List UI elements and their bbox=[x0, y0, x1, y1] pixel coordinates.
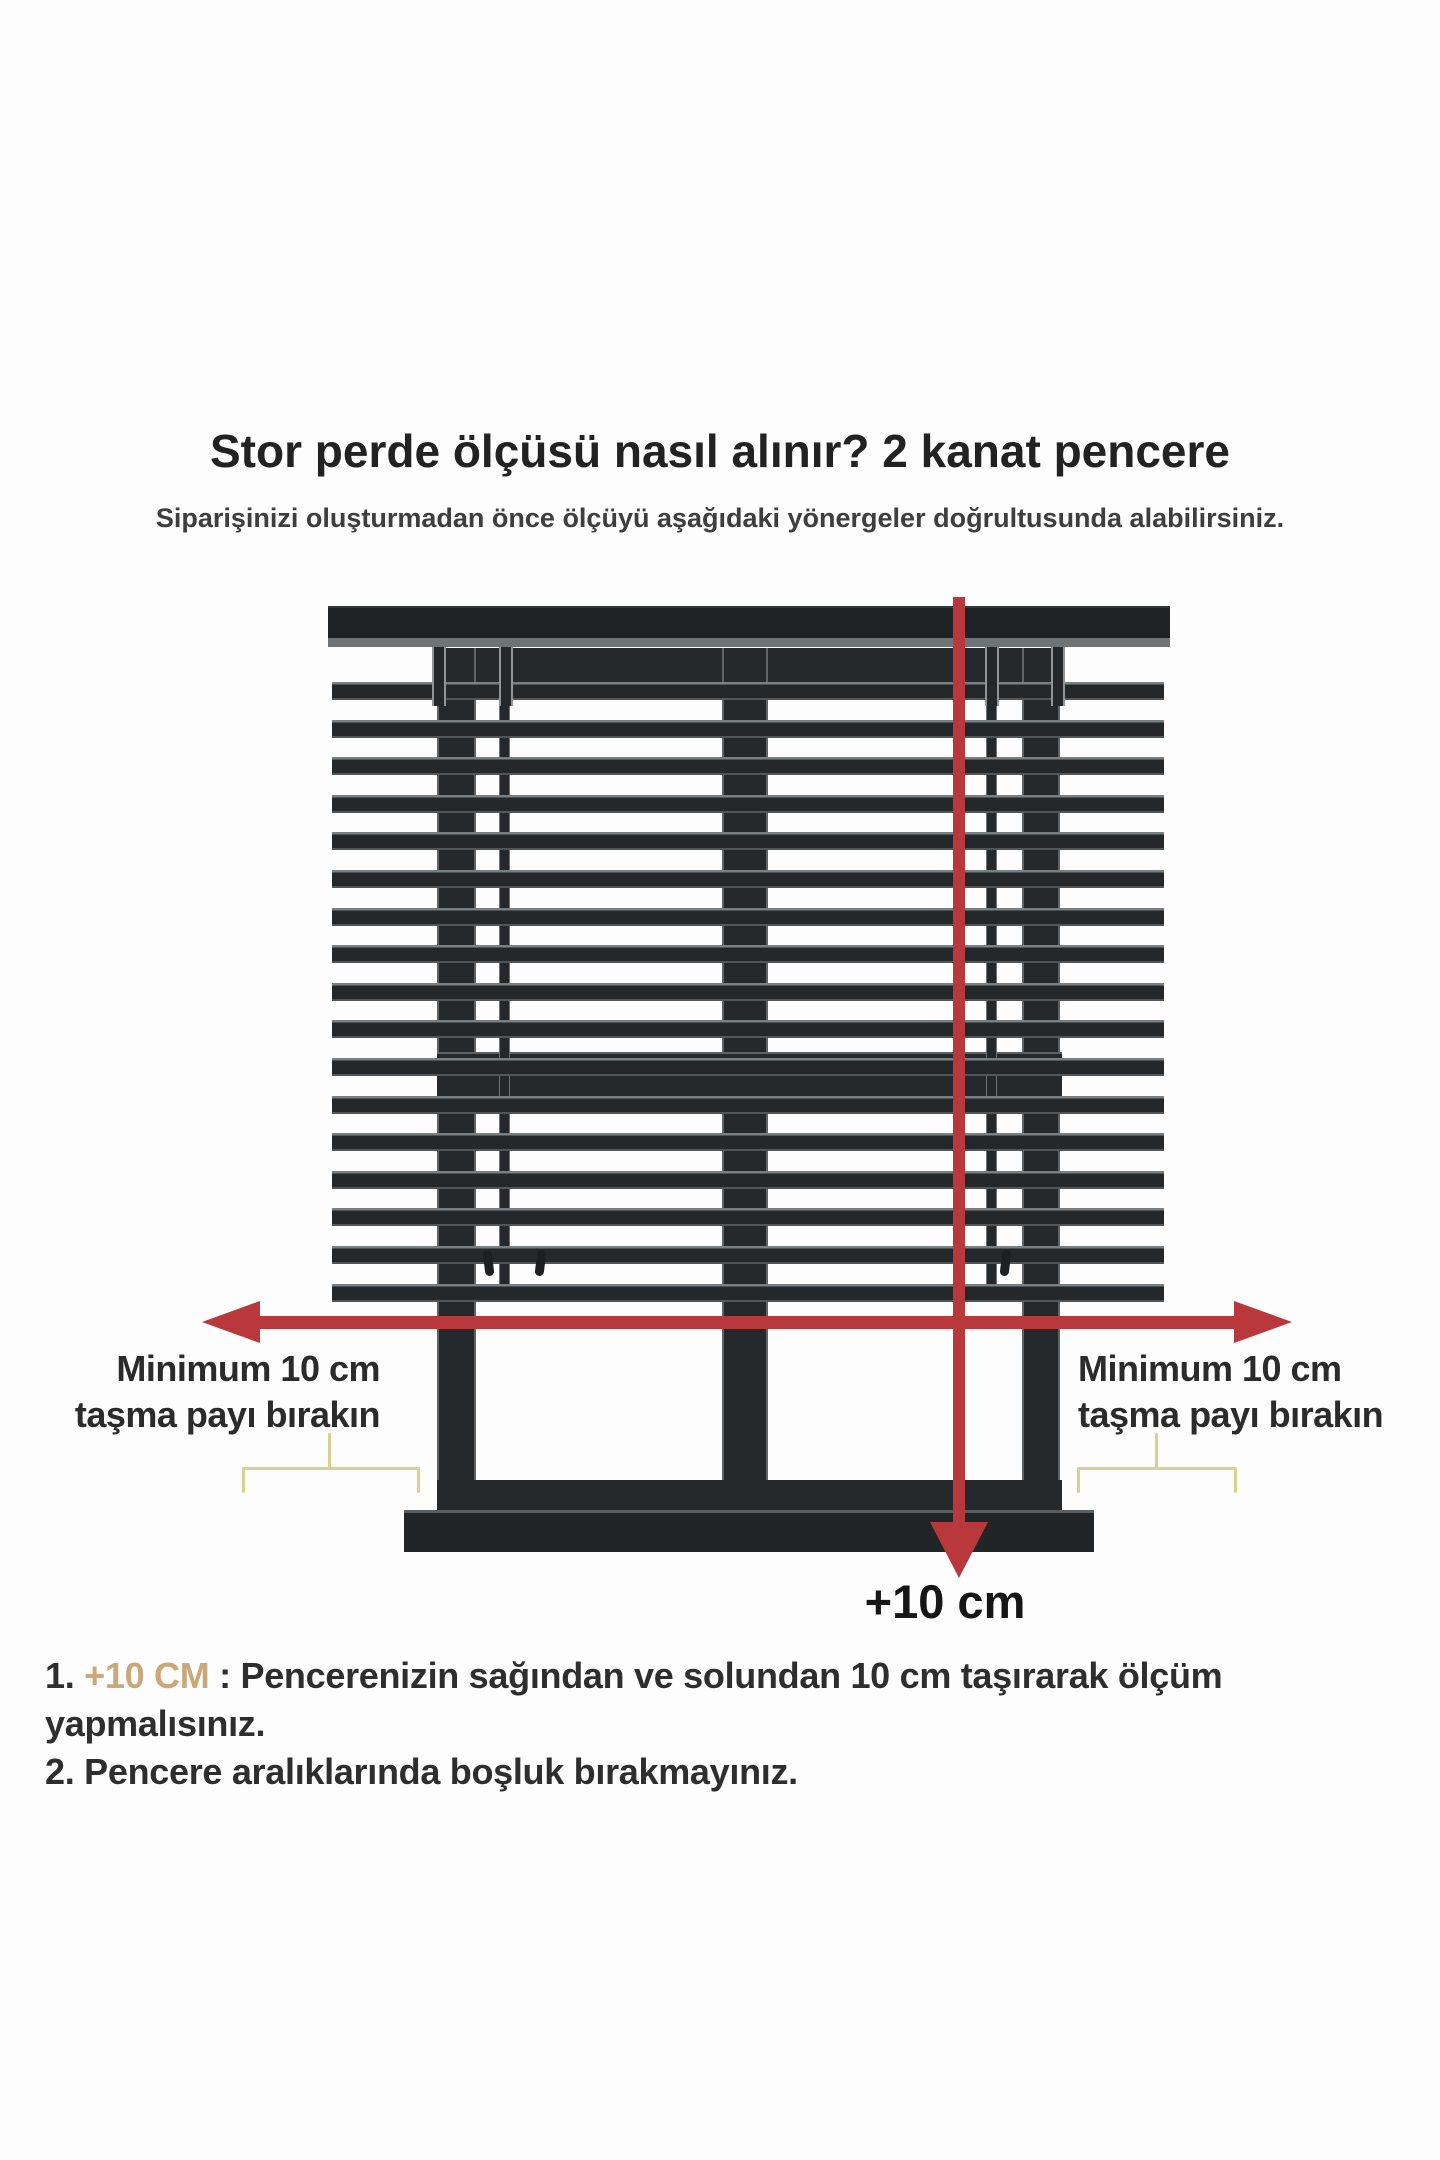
instruction-note-1: 1. +10 CM : Pencerenizin sağından ve sol… bbox=[45, 1652, 1415, 1748]
blind-slat bbox=[332, 1246, 1164, 1264]
blind-slat bbox=[332, 795, 1164, 813]
left-overhang-bracket bbox=[417, 1467, 420, 1493]
measurement-guide-page: Stor perde ölçüsü nasıl alınır? 2 kanat … bbox=[0, 0, 1440, 2160]
left-overhang-label-line2: taşma payı bırakın bbox=[40, 1392, 380, 1438]
height-arrow-down-head bbox=[930, 1522, 988, 1578]
blind-slat bbox=[332, 757, 1164, 775]
left-overhang-label-line1: Minimum 10 cm bbox=[40, 1346, 380, 1392]
blind-headrail bbox=[328, 606, 1170, 647]
left-overhang-label: Minimum 10 cm taşma payı bırakın bbox=[40, 1346, 380, 1438]
width-arrow-shaft bbox=[230, 1316, 1260, 1329]
blind-slat bbox=[332, 720, 1164, 738]
height-arrow-shaft bbox=[953, 597, 965, 1529]
blind-cord-right bbox=[986, 646, 997, 1300]
blind-slat bbox=[332, 945, 1164, 963]
instruction-note-2: 2. Pencere aralıklarında boşluk bırakmay… bbox=[45, 1748, 1415, 1796]
left-overhang-bracket bbox=[242, 1467, 245, 1493]
note-number: 1. bbox=[45, 1655, 84, 1696]
left-overhang-bracket bbox=[328, 1433, 331, 1470]
blind-pull-hook bbox=[534, 1250, 546, 1277]
note-text: Pencere aralıklarında boşluk bırakmayını… bbox=[84, 1751, 798, 1792]
page-title: Stor perde ölçüsü nasıl alınır? 2 kanat … bbox=[0, 424, 1440, 478]
blind-pull-hook bbox=[999, 1250, 1011, 1277]
blind-slat bbox=[332, 908, 1164, 926]
height-arrow-label: +10 cm bbox=[790, 1574, 1100, 1629]
blind-slat bbox=[332, 1171, 1164, 1189]
blind-slat bbox=[332, 1058, 1164, 1076]
blind-slat bbox=[332, 832, 1164, 850]
window-bottom-rail bbox=[437, 1480, 1062, 1510]
note-text: : Pencerenizin sağından ve solundan 10 c… bbox=[45, 1655, 1232, 1744]
blind-slat bbox=[332, 870, 1164, 888]
right-overhang-label: Minimum 10 cm taşma payı bırakın bbox=[1078, 1346, 1418, 1438]
right-overhang-bracket bbox=[1155, 1433, 1158, 1470]
page-subtitle: Siparişinizi oluşturmadan önce ölçüyü aş… bbox=[0, 503, 1440, 534]
blind-cord-left bbox=[499, 646, 510, 1300]
window-sill bbox=[404, 1510, 1094, 1552]
instruction-notes: 1. +10 CM : Pencerenizin sağından ve sol… bbox=[45, 1652, 1415, 1796]
right-overhang-label-line1: Minimum 10 cm bbox=[1078, 1346, 1418, 1392]
right-overhang-bracket bbox=[1077, 1467, 1080, 1493]
blind-slat bbox=[332, 1020, 1164, 1038]
blind-slat bbox=[332, 1284, 1164, 1302]
left-overhang-bracket bbox=[242, 1467, 420, 1470]
blind-slat bbox=[332, 1208, 1164, 1226]
blind-slat bbox=[332, 1133, 1164, 1151]
blind-slat bbox=[332, 1096, 1164, 1114]
width-arrow-left-head bbox=[202, 1301, 260, 1343]
note-number: 2. bbox=[45, 1751, 84, 1792]
note-highlight: +10 CM bbox=[84, 1655, 209, 1696]
right-overhang-bracket bbox=[1234, 1467, 1237, 1493]
blind-slat bbox=[332, 983, 1164, 1001]
blind-slat bbox=[332, 682, 1164, 700]
width-arrow-right-head bbox=[1234, 1301, 1292, 1343]
right-overhang-label-line2: taşma payı bırakın bbox=[1078, 1392, 1418, 1438]
